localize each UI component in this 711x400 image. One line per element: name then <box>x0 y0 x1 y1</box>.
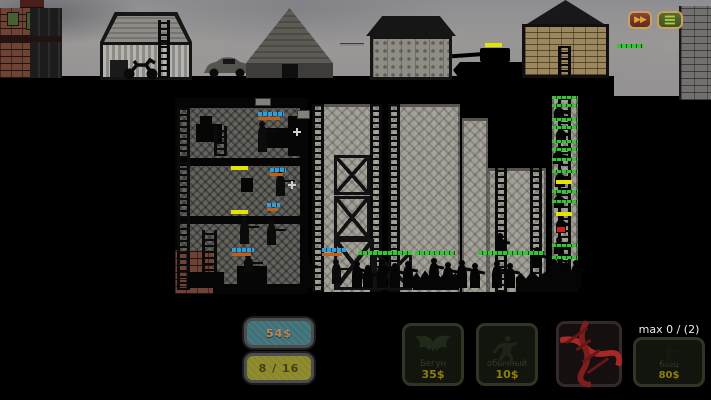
capacity-value: 8 / 16 <box>247 356 311 380</box>
building-ladder-left <box>177 108 190 290</box>
wall-a-ladder-left <box>312 104 324 292</box>
facade-ladder <box>558 46 571 78</box>
tower-ladder <box>558 96 571 292</box>
pyramid-door <box>282 64 298 78</box>
scaffold-tier <box>334 196 370 239</box>
wall-d-ladder-1 <box>495 168 507 292</box>
unit-cost: 10$ <box>496 369 519 381</box>
lit-window <box>7 12 19 26</box>
dark-window-panel <box>30 8 62 78</box>
crate-small <box>200 116 212 124</box>
dna-upgrade-button[interactable] <box>556 321 622 387</box>
unit-button-fighter[interactable]: боец 80$ <box>633 337 705 387</box>
runner-icon <box>492 334 522 366</box>
box <box>241 178 253 192</box>
antenna <box>340 43 364 46</box>
capacity-display: 8 / 16 <box>244 353 314 383</box>
game-stage: ▶▶ ≡ 54$ <box>0 0 711 400</box>
fast-forward-button[interactable]: ▶▶ <box>628 11 652 29</box>
money-display: 54$ <box>244 318 314 348</box>
garage-roof-inner <box>104 16 188 42</box>
interior-ladder <box>214 126 227 156</box>
building-brick-right <box>518 0 613 80</box>
menu-icon: ≡ <box>663 15 676 25</box>
motorcycle-icon <box>120 58 162 80</box>
desk <box>237 266 267 286</box>
barn-facade <box>370 36 452 80</box>
roof-vent <box>255 98 271 106</box>
crate-bottom <box>188 272 224 288</box>
scaffold-tier <box>334 155 370 195</box>
roof-vent <box>297 110 310 119</box>
gun-barrel <box>296 134 308 138</box>
dna-icon <box>550 314 628 392</box>
wall-d-ladder-2 <box>530 168 542 292</box>
building-right-edge <box>679 6 711 100</box>
car <box>202 55 252 79</box>
roof-triangle <box>518 0 613 26</box>
pyramid-roof <box>246 8 333 63</box>
unit-cost: 35$ <box>422 369 445 381</box>
wave-menu-button[interactable]: ≡ <box>657 11 683 29</box>
money-value: 54$ <box>247 321 311 345</box>
unit-button-common[interactable]: обычный 10$ <box>476 323 538 386</box>
scaffold-tier <box>374 251 412 290</box>
soldier-icon <box>658 343 680 367</box>
garage-ladder <box>158 20 170 78</box>
max-counter: max 0 / (2) <box>633 323 705 336</box>
scaffold-tier <box>334 239 374 290</box>
bat-icon <box>411 334 455 360</box>
building-pyramid <box>246 8 333 78</box>
floor-divider <box>0 36 62 42</box>
unit-button-flyer[interactable]: Бегун 35$ <box>402 323 464 386</box>
building-brick-left <box>0 8 62 78</box>
wall-c <box>462 118 488 292</box>
building-garage <box>100 12 192 80</box>
building-barn <box>366 16 456 80</box>
fast-forward-icon: ▶▶ <box>634 15 646 25</box>
unit-cost: 80$ <box>659 370 680 382</box>
barn-roof <box>366 16 456 36</box>
defense-building <box>175 98 308 294</box>
floor-2 <box>179 166 300 216</box>
